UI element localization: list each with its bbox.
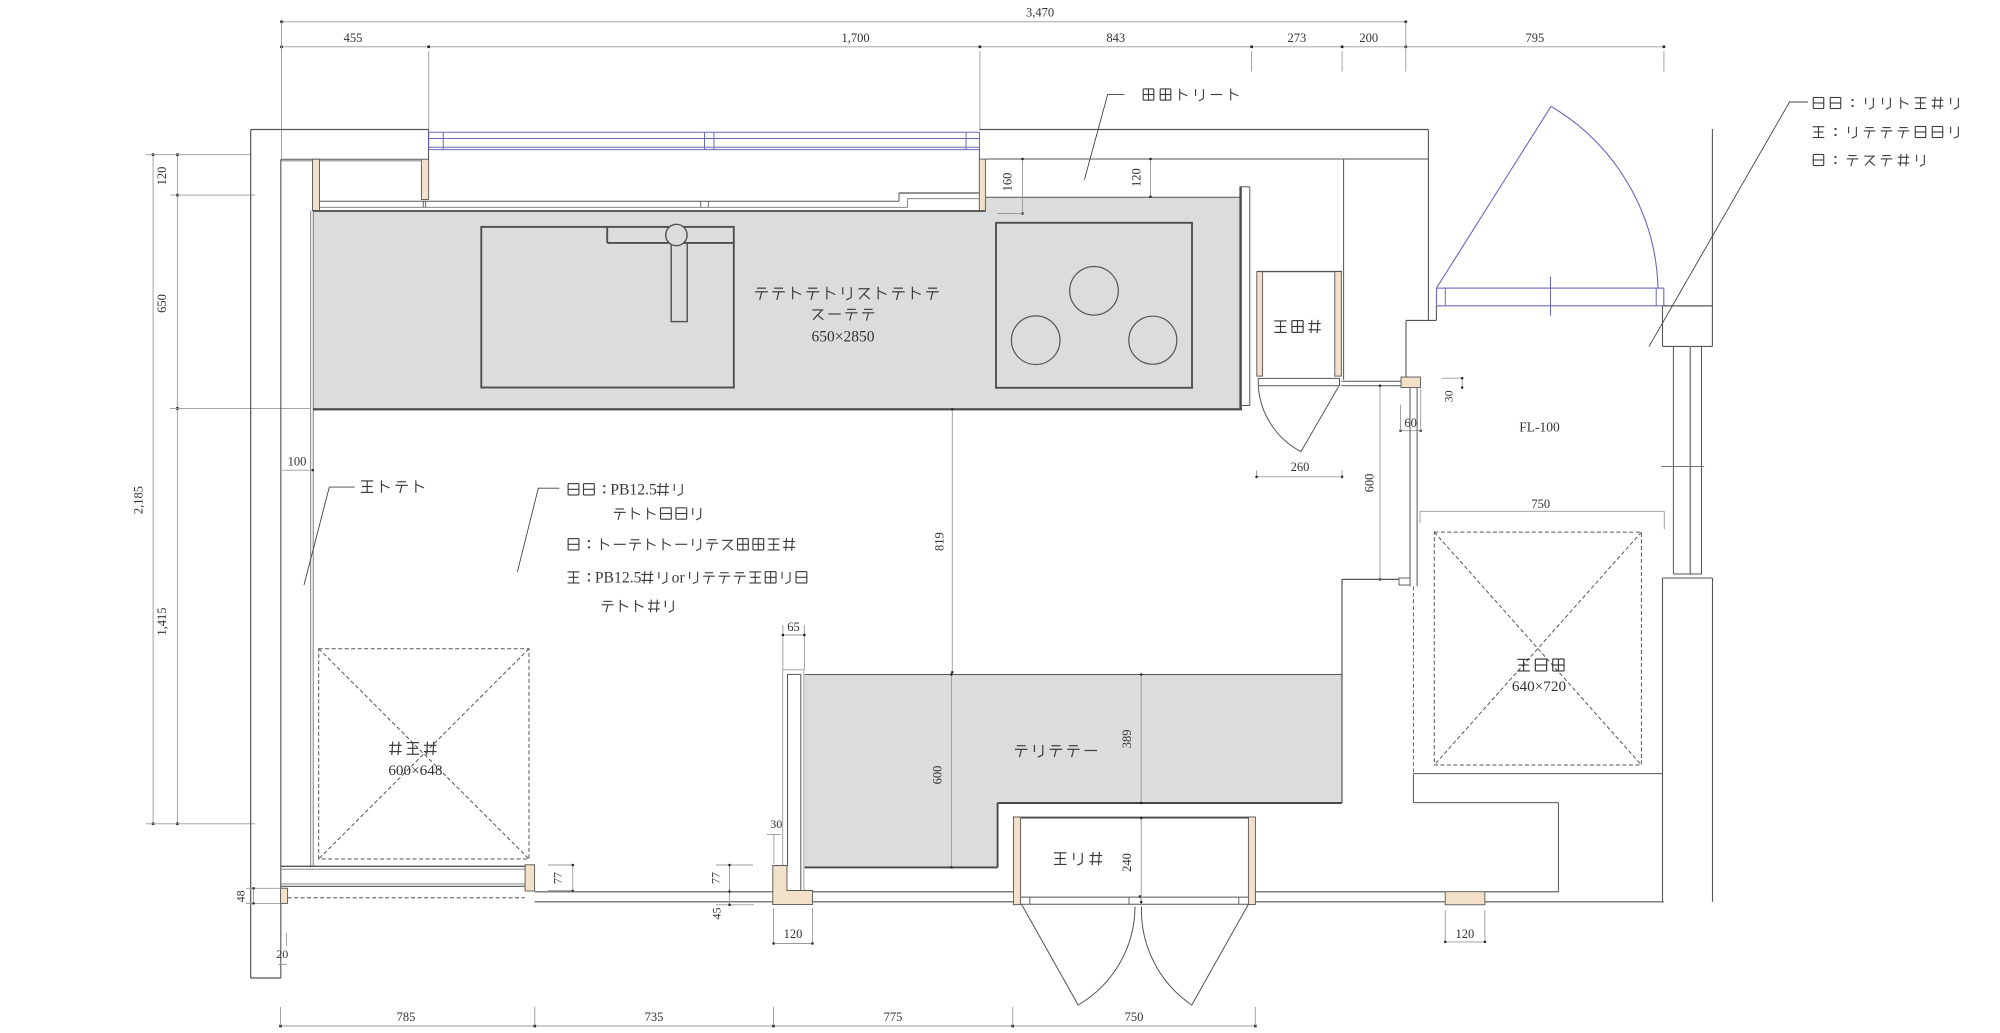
svg-text:120: 120 [1456, 927, 1475, 941]
svg-text:273: 273 [1288, 31, 1307, 45]
svg-text:775: 775 [884, 1010, 903, 1024]
svg-text:48: 48 [234, 890, 248, 902]
svg-text:160: 160 [1001, 173, 1015, 192]
svg-text:455: 455 [344, 31, 363, 45]
svg-text:785: 785 [397, 1010, 416, 1024]
svg-text:1,700: 1,700 [841, 31, 869, 45]
svg-text:750: 750 [1531, 497, 1550, 511]
svg-text:100: 100 [288, 455, 307, 469]
svg-text:843: 843 [1106, 31, 1125, 45]
svg-text:735: 735 [645, 1010, 664, 1024]
svg-text:30: 30 [770, 817, 782, 831]
svg-text:819: 819 [933, 532, 947, 551]
svg-text:77: 77 [709, 872, 723, 884]
svg-text:389: 389 [1120, 729, 1134, 748]
svg-text:20: 20 [276, 947, 288, 961]
svg-text:795: 795 [1526, 31, 1545, 45]
svg-text:120: 120 [155, 167, 169, 186]
svg-text:120: 120 [1129, 168, 1143, 187]
svg-text:120: 120 [784, 927, 803, 941]
svg-text:60: 60 [1404, 416, 1417, 430]
svg-text:240: 240 [1120, 853, 1134, 872]
svg-text:200: 200 [1359, 31, 1378, 45]
svg-text:PB12.5: PB12.5 [595, 570, 642, 587]
svg-text:FL-100: FL-100 [1519, 420, 1560, 435]
svg-text:30: 30 [1442, 390, 1456, 402]
svg-text:600: 600 [931, 766, 945, 785]
svg-text:650×2850: 650×2850 [812, 329, 875, 346]
svg-text:45: 45 [709, 908, 723, 920]
svg-text:77: 77 [551, 872, 565, 884]
svg-text:600×648: 600×648 [388, 762, 443, 779]
svg-text:260: 260 [1291, 460, 1310, 474]
svg-text:600: 600 [1363, 474, 1377, 493]
svg-text:3,470: 3,470 [1026, 6, 1054, 20]
svg-text:65: 65 [787, 620, 800, 634]
svg-text:640×720: 640×720 [1512, 678, 1567, 695]
svg-text:2,185: 2,185 [132, 486, 146, 514]
svg-text:750: 750 [1125, 1010, 1144, 1024]
svg-text:or: or [672, 570, 686, 587]
svg-text:650: 650 [155, 294, 169, 313]
svg-text:PB12.5: PB12.5 [610, 482, 657, 499]
svg-text:1,415: 1,415 [155, 607, 169, 635]
